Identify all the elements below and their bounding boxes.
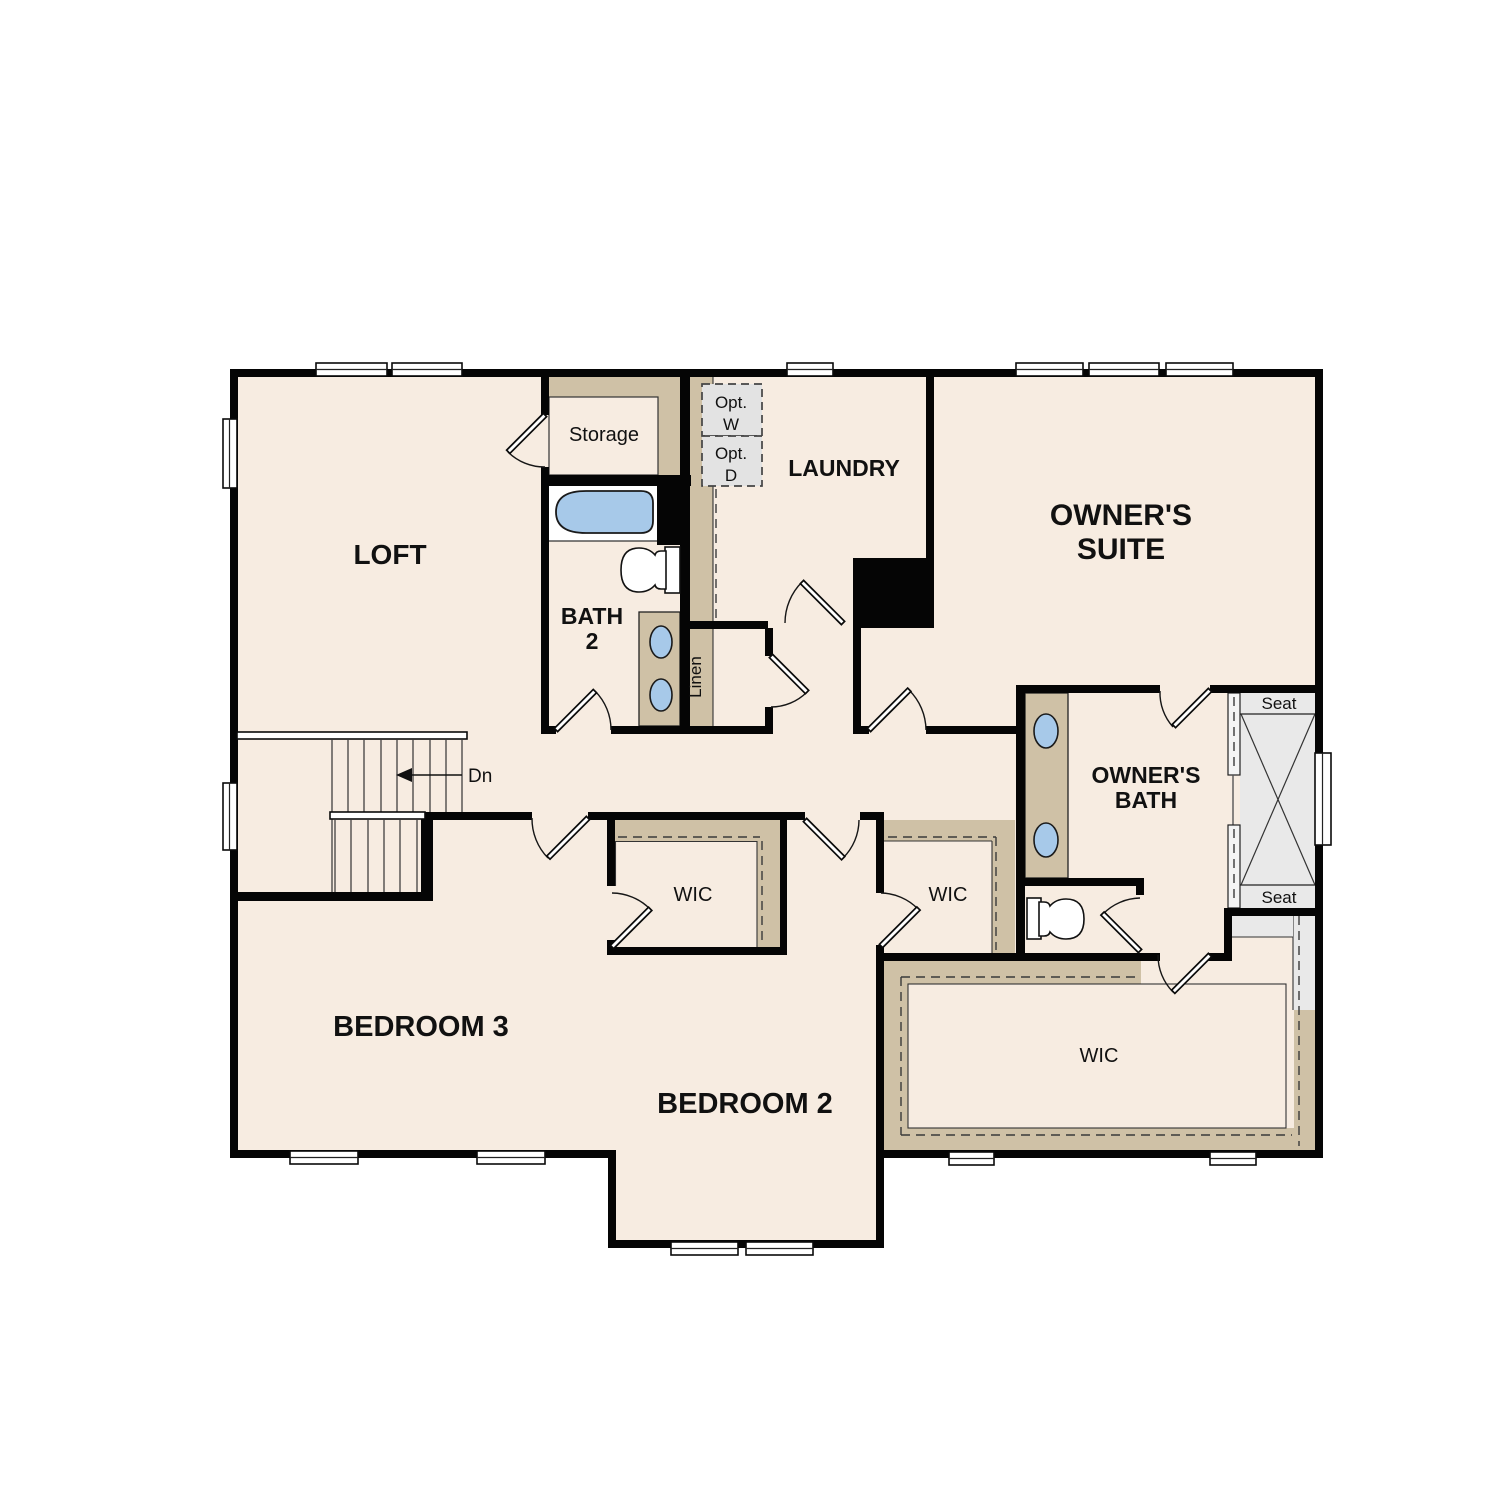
- svg-text:Seat: Seat: [1262, 694, 1297, 713]
- svg-text:SUITE: SUITE: [1077, 533, 1165, 566]
- svg-text:BEDROOM 2: BEDROOM 2: [657, 1088, 833, 1120]
- svg-text:WIC: WIC: [674, 884, 713, 906]
- svg-text:Linen: Linen: [686, 656, 705, 698]
- svg-text:Seat: Seat: [1262, 888, 1297, 907]
- svg-text:Opt.: Opt.: [715, 393, 747, 412]
- svg-text:Dn: Dn: [468, 766, 492, 787]
- svg-text:BATH: BATH: [561, 603, 623, 629]
- svg-text:2: 2: [586, 628, 599, 654]
- svg-text:LAUNDRY: LAUNDRY: [788, 455, 900, 481]
- svg-text:LOFT: LOFT: [353, 539, 426, 570]
- svg-text:OWNER'S: OWNER'S: [1092, 762, 1201, 788]
- svg-text:W: W: [723, 415, 739, 434]
- svg-text:D: D: [725, 466, 737, 485]
- svg-text:Storage: Storage: [569, 424, 639, 446]
- svg-text:BEDROOM 3: BEDROOM 3: [333, 1011, 509, 1043]
- svg-text:BATH: BATH: [1115, 787, 1177, 813]
- svg-text:Opt.: Opt.: [715, 444, 747, 463]
- svg-text:WIC: WIC: [929, 884, 968, 906]
- svg-text:OWNER'S: OWNER'S: [1050, 499, 1192, 532]
- svg-text:WIC: WIC: [1080, 1045, 1119, 1067]
